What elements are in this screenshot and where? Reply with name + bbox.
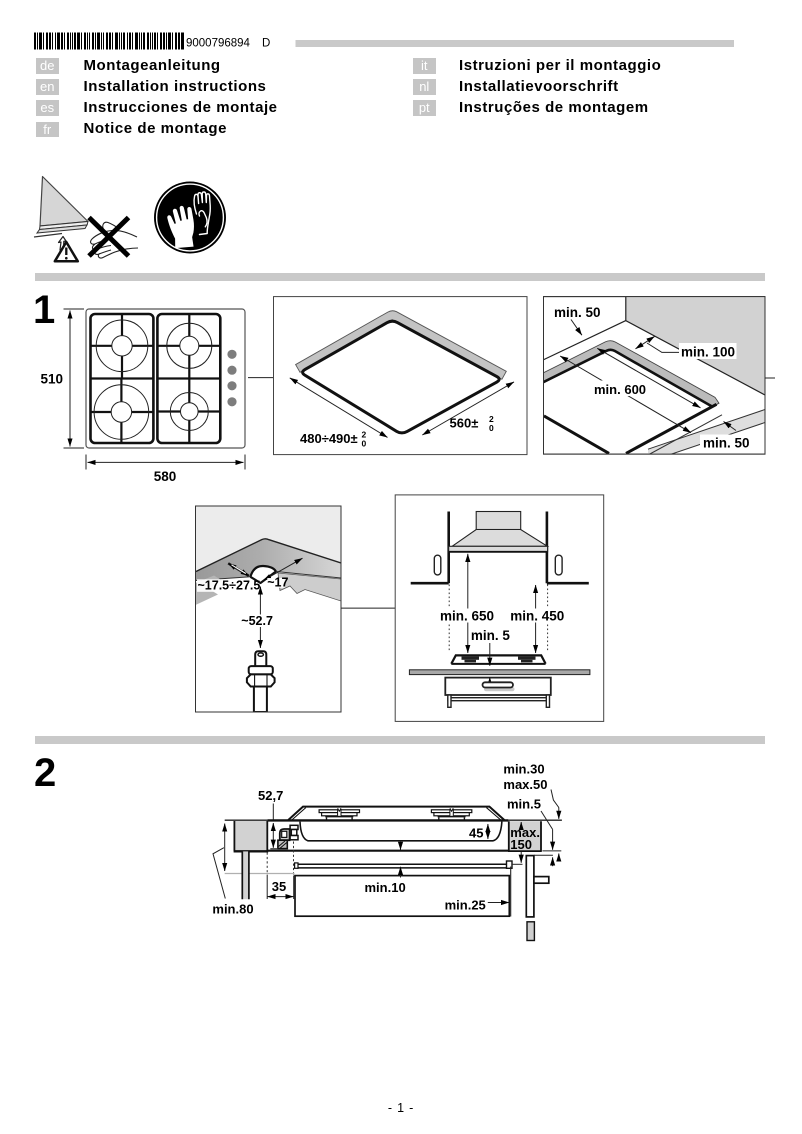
svg-text:480÷490±: 480÷490± <box>300 431 358 446</box>
svg-text:45: 45 <box>469 825 483 840</box>
svg-text:0: 0 <box>489 423 494 433</box>
svg-text:9000796894: 9000796894 <box>186 38 251 50</box>
svg-text:min.25: min.25 <box>445 898 486 913</box>
svg-text:min. 50: min. 50 <box>554 305 601 320</box>
svg-text:min. 650: min. 650 <box>440 609 494 624</box>
svg-text:min.5: min.5 <box>507 797 541 812</box>
svg-text:max.50: max.50 <box>503 777 547 792</box>
svg-text:min. 600: min. 600 <box>594 382 646 397</box>
svg-text:~17.5÷27.5: ~17.5÷27.5 <box>198 579 261 593</box>
svg-text:560±: 560± <box>450 416 479 431</box>
svg-text:min. 50: min. 50 <box>703 435 750 450</box>
svg-text:min. 100: min. 100 <box>681 345 735 360</box>
svg-text:min.80: min.80 <box>212 902 253 917</box>
svg-text:0: 0 <box>362 439 367 449</box>
svg-text:510: 510 <box>40 372 63 387</box>
svg-text:min. 5: min. 5 <box>471 628 511 643</box>
svg-text:~52.7: ~52.7 <box>241 614 273 628</box>
svg-text:~17: ~17 <box>267 576 288 590</box>
svg-text:150: 150 <box>510 837 532 852</box>
svg-text:580: 580 <box>154 469 177 484</box>
svg-text:35: 35 <box>272 879 286 894</box>
svg-text:D: D <box>262 38 270 50</box>
svg-text:min.30: min.30 <box>503 762 544 777</box>
svg-text:min.10: min.10 <box>365 880 406 895</box>
svg-text:52,7: 52,7 <box>258 788 283 803</box>
svg-text:min. 450: min. 450 <box>510 609 564 624</box>
